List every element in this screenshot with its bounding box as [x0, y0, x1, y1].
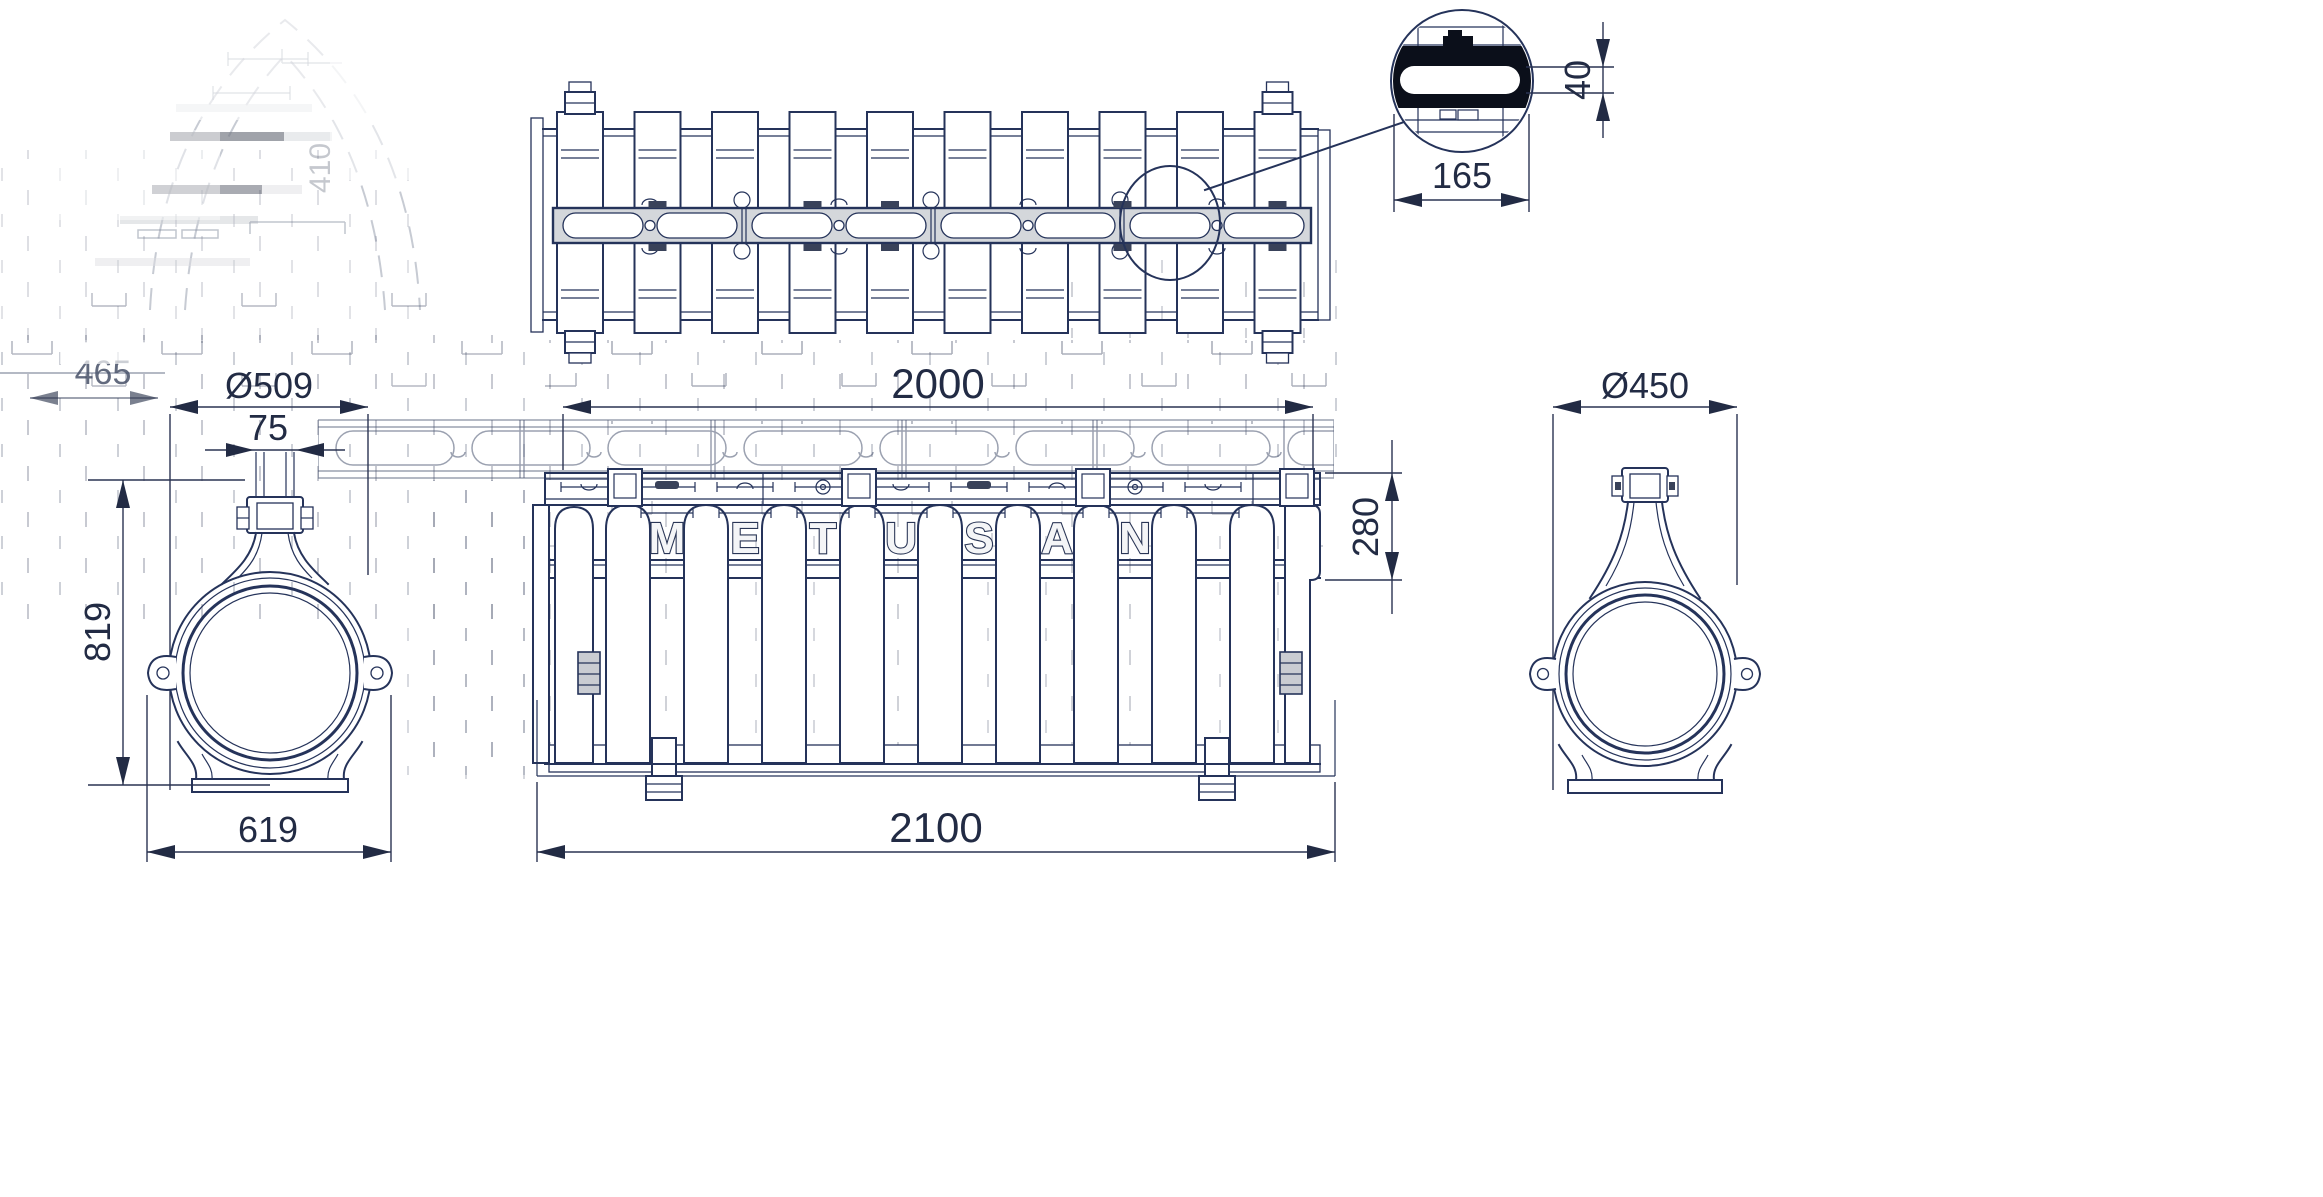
right-end-view: Ø450	[1530, 365, 1760, 793]
neck-width-dim-text: 75	[248, 407, 288, 448]
brand-letter: S	[964, 514, 993, 563]
brand-letter: M	[649, 514, 686, 563]
detail-width-dimension: 165	[1394, 114, 1529, 212]
detail-width-dim-text: 165	[1432, 155, 1492, 196]
top-view	[531, 82, 1404, 363]
detail-slot-opening	[1400, 66, 1520, 94]
brand-letter: T	[810, 514, 837, 563]
detail-height-dim-text: 40	[1557, 60, 1598, 100]
white-wash	[40, 130, 220, 220]
grate-length-dim-text: 2000	[891, 360, 984, 407]
latch-left	[646, 738, 682, 800]
left-base-width-dim-text: 619	[238, 809, 298, 850]
right-pipe-rings	[1553, 582, 1737, 766]
right-diameter-dim-text: Ø450	[1601, 365, 1689, 406]
left-diameter-dim-text: Ø509	[225, 365, 313, 406]
brand-letter: A	[1041, 514, 1073, 563]
brand-letter: N	[1119, 514, 1151, 563]
end-height-dim-text: 280	[1345, 497, 1386, 557]
latch-right	[1199, 738, 1235, 800]
detail-view: 165 40	[1388, 10, 1614, 212]
detail-height-dimension: 40	[1526, 22, 1614, 138]
overall-length-dim-text: 2100	[889, 804, 982, 851]
band-detail-row	[561, 480, 1241, 494]
right-neck-lock	[1612, 468, 1678, 502]
right-funnel	[1590, 502, 1700, 598]
technical-drawing: 410 465	[0, 0, 2323, 1197]
white-wash	[330, 60, 470, 180]
brand-letter: E	[730, 514, 759, 563]
left-height-dim-text: 819	[77, 602, 118, 662]
right-diameter-dimension: Ø450	[1553, 365, 1737, 790]
drawing-canvas: 410 465	[0, 0, 2323, 1197]
brand-letter: U	[885, 514, 917, 563]
detail-leader-line	[1205, 122, 1404, 190]
